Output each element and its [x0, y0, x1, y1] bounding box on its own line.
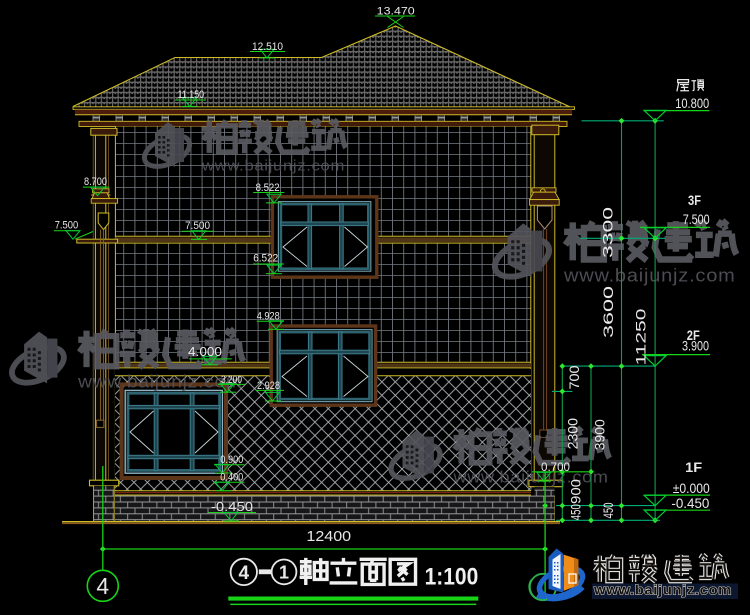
svg-text:12.510: 12.510 [252, 41, 283, 53]
svg-text:3600: 3600 [600, 286, 616, 338]
svg-text:-0.450: -0.450 [211, 499, 253, 514]
svg-text:2.928: 2.928 [257, 380, 280, 392]
svg-text:4.928: 4.928 [257, 310, 280, 322]
svg-text:1:100: 1:100 [425, 564, 479, 591]
svg-text:-0.450: -0.450 [671, 495, 709, 511]
svg-text:13.470: 13.470 [377, 6, 415, 18]
svg-text:900: 900 [568, 479, 584, 504]
svg-text:0.400: 0.400 [220, 472, 243, 484]
svg-text:1F: 1F [685, 459, 702, 475]
svg-text:3300: 3300 [600, 207, 616, 258]
svg-text:450: 450 [600, 502, 616, 518]
svg-text:2300: 2300 [565, 418, 581, 450]
svg-text:1: 1 [279, 563, 289, 583]
svg-text:2F: 2F [687, 327, 700, 343]
svg-text:8.700: 8.700 [84, 176, 107, 188]
svg-text:11250: 11250 [633, 308, 649, 365]
svg-text:12400: 12400 [306, 528, 351, 545]
svg-text:3F: 3F [688, 192, 701, 208]
svg-text:3.200: 3.200 [221, 374, 242, 386]
svg-text:7.500: 7.500 [55, 219, 78, 231]
svg-text:8.522: 8.522 [256, 182, 280, 194]
svg-text:7.500: 7.500 [683, 211, 710, 227]
svg-text:0.900: 0.900 [220, 454, 243, 466]
svg-text:450: 450 [568, 504, 584, 520]
svg-text:4: 4 [239, 563, 250, 584]
svg-text:±0.000: ±0.000 [673, 480, 710, 496]
svg-text:www.baijunjz.com: www.baijunjz.com [593, 583, 732, 598]
svg-text:10.800: 10.800 [675, 95, 709, 111]
svg-text:3900: 3900 [592, 419, 608, 450]
svg-text:4: 4 [96, 573, 109, 599]
svg-text:6.522: 6.522 [253, 253, 278, 265]
svg-text:4.000: 4.000 [188, 344, 222, 359]
svg-text:700: 700 [566, 365, 582, 389]
svg-text:7.500: 7.500 [185, 220, 210, 232]
svg-text:11.150: 11.150 [178, 89, 205, 101]
